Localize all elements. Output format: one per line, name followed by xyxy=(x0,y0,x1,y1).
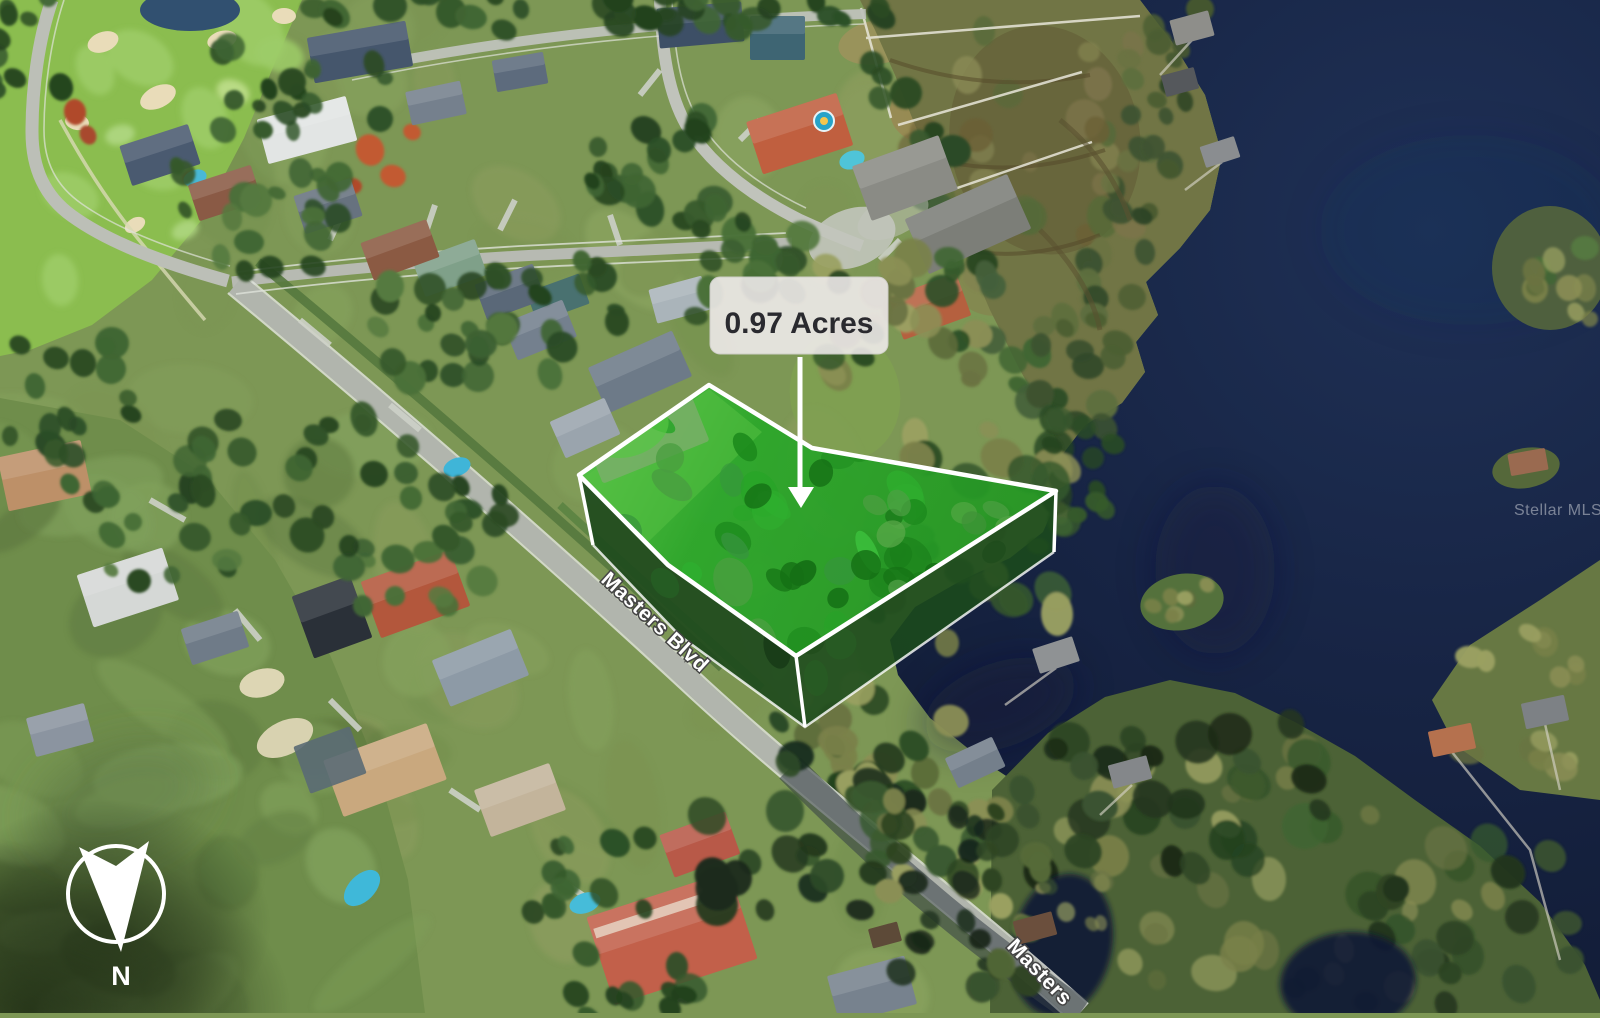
svg-text:N: N xyxy=(111,961,131,991)
svg-text:Stellar MLS: Stellar MLS xyxy=(1514,502,1600,519)
svg-text:0.97 Acres: 0.97 Acres xyxy=(724,307,873,340)
